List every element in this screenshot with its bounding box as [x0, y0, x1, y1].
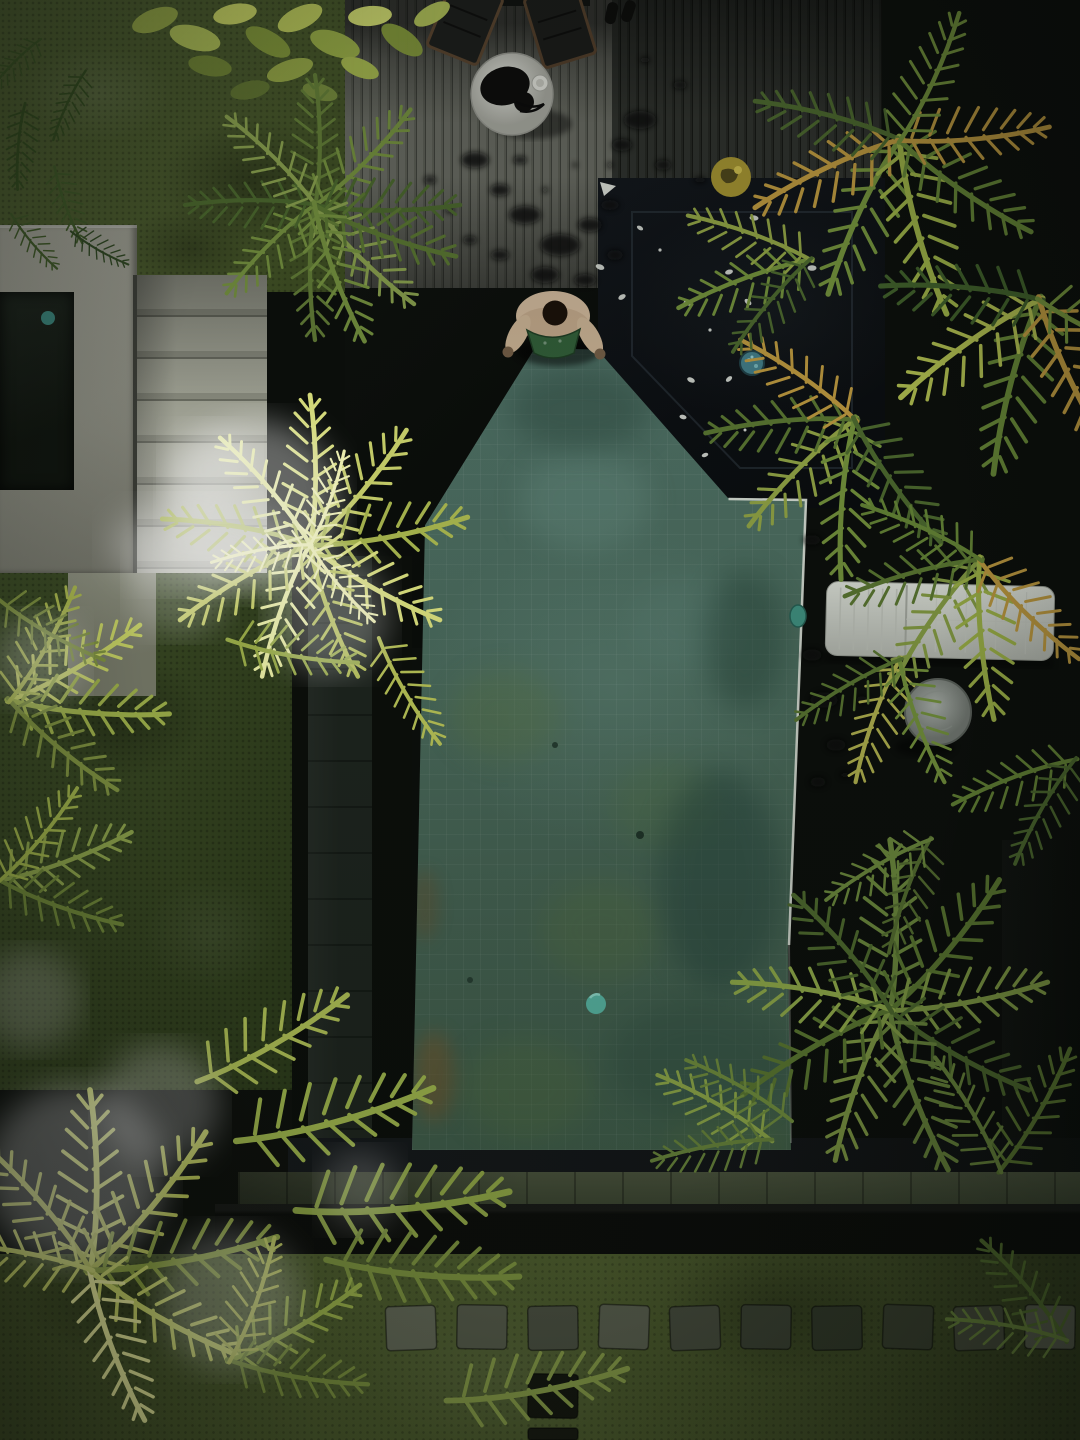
sandals [604, 0, 637, 25]
yellow-float-highlight [734, 166, 742, 174]
person-hand [503, 347, 514, 358]
teal-pot [41, 311, 55, 325]
shorts-dot [558, 339, 561, 342]
palm-cluster-bottomright [646, 820, 1080, 1362]
leaf-debris [636, 831, 644, 839]
photo-detail-overlay [0, 0, 1080, 1440]
wet-splashes-gray-deck [424, 57, 706, 286]
fern-cluster-topleft [0, 30, 134, 277]
person-hand [595, 349, 606, 360]
corner-marker [600, 182, 616, 196]
pool-ball [586, 994, 606, 1014]
leaf-debris [552, 742, 558, 748]
aerial-villa-photo [0, 0, 1080, 1440]
palm-cluster-topright [670, 2, 1080, 874]
leaf-debris [467, 977, 473, 983]
shorts-dot [543, 341, 546, 344]
mosaic-dot [751, 356, 754, 359]
skimmer-lid [790, 605, 806, 627]
shrub-foliage [129, 0, 454, 105]
deck-furniture [426, 0, 637, 139]
pool-edge [467, 499, 806, 1143]
white-coping-line-faint [789, 945, 791, 1143]
mosaic-dot [754, 364, 758, 368]
cup-inner [536, 79, 544, 87]
white-coping-line [729, 499, 807, 945]
sun-flares [0, 420, 400, 1370]
person-crouching [500, 291, 608, 366]
person-head [543, 301, 568, 326]
palm-top-center [185, 75, 465, 350]
